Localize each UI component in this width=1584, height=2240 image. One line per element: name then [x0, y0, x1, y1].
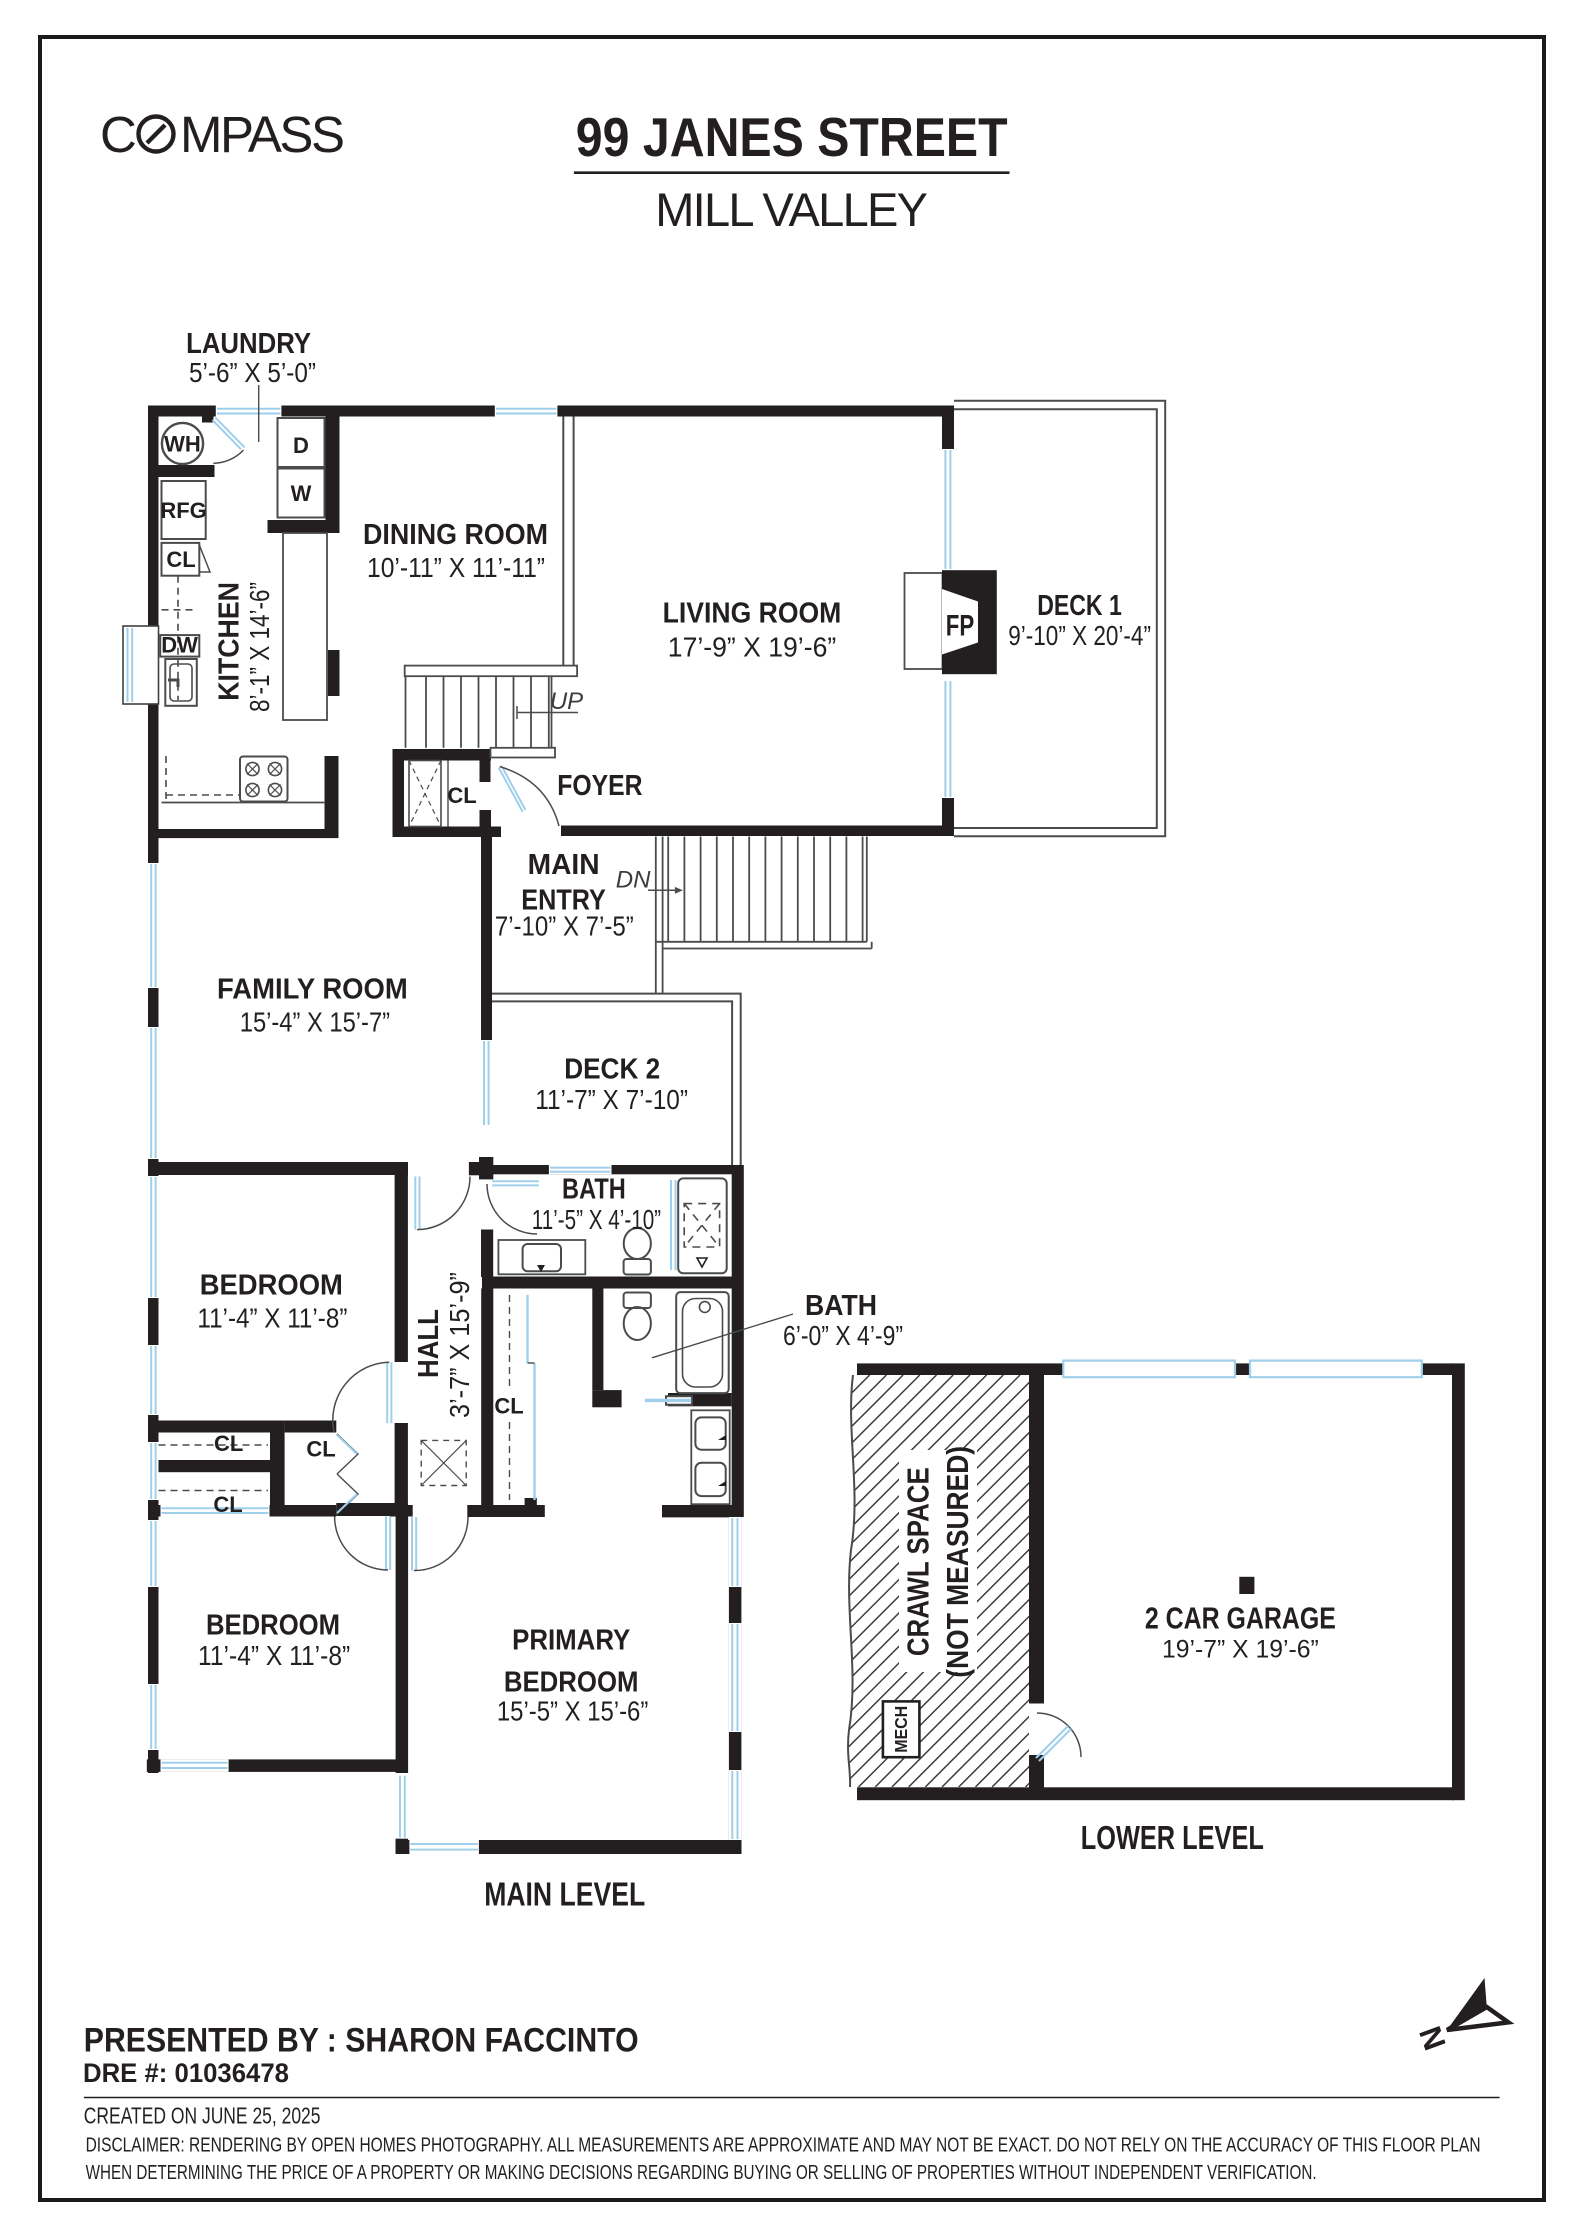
svg-text:8’-1” X 14’-6”: 8’-1” X 14’-6” [244, 582, 275, 712]
svg-text:W: W [291, 481, 312, 506]
svg-text:PRESENTED BY : SHARON FACCINTO: PRESENTED BY : SHARON FACCINTO [84, 2022, 639, 2060]
svg-text:FP: FP [946, 610, 975, 643]
svg-text:KITCHEN: KITCHEN [213, 582, 245, 701]
svg-text:CL: CL [447, 783, 476, 808]
svg-text:PRIMARY: PRIMARY [512, 1625, 630, 1657]
svg-text:MILL VALLEY: MILL VALLEY [655, 183, 928, 236]
svg-text:CL: CL [213, 1492, 242, 1517]
svg-text:C: C [100, 106, 137, 163]
svg-text:RFG: RFG [160, 498, 206, 523]
svg-text:DINING ROOM: DINING ROOM [363, 519, 548, 551]
svg-text:LOWER LEVEL: LOWER LEVEL [1081, 1819, 1264, 1856]
svg-text:9’-10” X 20’-4”: 9’-10” X 20’-4” [1008, 620, 1151, 651]
svg-text:7’-10” X 7’-5”: 7’-10” X 7’-5” [495, 911, 634, 942]
svg-text:LAUNDRY: LAUNDRY [186, 328, 311, 360]
svg-text:CL: CL [166, 547, 195, 572]
svg-text:11’-5” X 4’-10”: 11’-5” X 4’-10” [532, 1204, 661, 1235]
svg-text:BEDROOM: BEDROOM [200, 1270, 343, 1302]
svg-text:11’-4” X 11’-8”: 11’-4” X 11’-8” [198, 1640, 350, 1671]
svg-text:MPASS: MPASS [180, 106, 345, 163]
svg-text:17’-9” X 19’-6”: 17’-9” X 19’-6” [668, 631, 836, 662]
svg-text:BATH: BATH [805, 1290, 877, 1322]
svg-text:DW: DW [161, 633, 198, 658]
svg-text:WHEN DETERMINING THE PRICE OF: WHEN DETERMINING THE PRICE OF A PROPERTY… [86, 2162, 1317, 2184]
svg-text:CL: CL [214, 1431, 243, 1456]
svg-text:UP: UP [550, 688, 583, 715]
svg-text:2 CAR GARAGE: 2 CAR GARAGE [1145, 1600, 1336, 1635]
svg-text:DECK 1: DECK 1 [1037, 590, 1122, 622]
svg-text:BATH: BATH [562, 1174, 626, 1206]
svg-text:CREATED ON JUNE 25, 2025: CREATED ON JUNE 25, 2025 [84, 2103, 321, 2129]
svg-text:FOYER: FOYER [557, 770, 642, 802]
svg-text:CL: CL [306, 1436, 335, 1461]
svg-text:3’-7” X 15’-9”: 3’-7” X 15’-9” [444, 1272, 475, 1418]
svg-text:DISCLAIMER: RENDERING BY OPEN: DISCLAIMER: RENDERING BY OPEN HOMES PHOT… [86, 2135, 1481, 2157]
svg-text:FAMILY ROOM: FAMILY ROOM [217, 973, 408, 1005]
svg-text:LIVING ROOM: LIVING ROOM [663, 598, 842, 630]
svg-text:11’-7” X 7’-10”: 11’-7” X 7’-10” [535, 1084, 688, 1115]
svg-text:CRAWL SPACE: CRAWL SPACE [900, 1467, 935, 1656]
svg-text:D: D [293, 433, 309, 458]
svg-text:DRE #: 01036478: DRE #: 01036478 [83, 2058, 289, 2088]
svg-text:DECK 2: DECK 2 [564, 1054, 660, 1086]
svg-text:MAIN LEVEL: MAIN LEVEL [484, 1876, 645, 1913]
svg-text:15’-5” X 15’-6”: 15’-5” X 15’-6” [497, 1696, 648, 1727]
svg-text:19’-7” X 19’-6”: 19’-7” X 19’-6” [1162, 1635, 1319, 1663]
svg-text:WH: WH [164, 432, 201, 457]
svg-text:5’-6” X 5’-0”: 5’-6” X 5’-0” [189, 357, 316, 388]
svg-text:DN: DN [616, 867, 651, 894]
svg-text:CL: CL [494, 1393, 523, 1418]
svg-text:6’-0” X 4’-9”: 6’-0” X 4’-9” [783, 1320, 903, 1351]
svg-text:15’-4” X 15’-7”: 15’-4” X 15’-7” [240, 1007, 390, 1038]
svg-text:HALL: HALL [413, 1309, 445, 1378]
svg-text:MAIN: MAIN [528, 849, 600, 881]
svg-text:BEDROOM: BEDROOM [206, 1610, 340, 1642]
svg-text:99 JANES STREET: 99 JANES STREET [576, 106, 1008, 168]
svg-text:BEDROOM: BEDROOM [504, 1666, 639, 1698]
svg-text:11’-4” X 11’-8”: 11’-4” X 11’-8” [197, 1303, 347, 1334]
svg-text:MECH: MECH [891, 1706, 911, 1753]
svg-text:(NOT MEASURED): (NOT MEASURED) [940, 1446, 975, 1678]
svg-text:10’-11” X 11’-11”: 10’-11” X 11’-11” [367, 552, 545, 583]
